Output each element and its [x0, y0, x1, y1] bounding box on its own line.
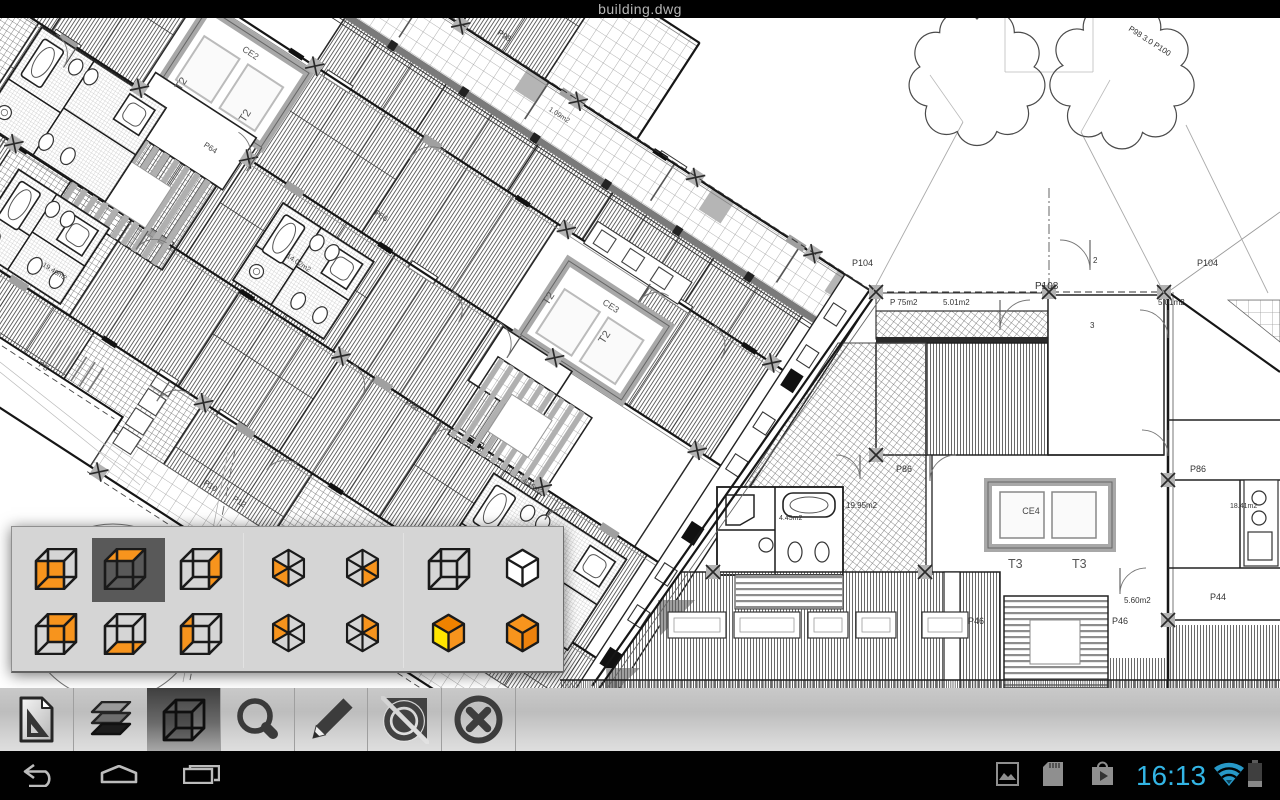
svg-text:5.01m2: 5.01m2: [1158, 298, 1185, 307]
svg-text:P46: P46: [1112, 616, 1128, 626]
svg-text:P104: P104: [852, 258, 873, 268]
svg-text:P 75m2: P 75m2: [890, 298, 918, 307]
svg-text:P108: P108: [1035, 281, 1059, 292]
svg-text:4.45m2: 4.45m2: [779, 515, 802, 522]
svg-text:T3: T3: [1072, 557, 1087, 571]
svg-text:P104: P104: [1197, 258, 1218, 268]
svg-text:T3: T3: [1008, 557, 1023, 571]
svg-text:CE4: CE4: [1022, 506, 1040, 516]
svg-text:5.01m2: 5.01m2: [943, 298, 970, 307]
svg-text:18.41m2: 18.41m2: [1230, 503, 1257, 510]
svg-text:19.95m2: 19.95m2: [846, 501, 878, 510]
svg-text:P44: P44: [1210, 592, 1226, 602]
svg-text:P86: P86: [896, 464, 912, 474]
svg-text:P86: P86: [1190, 464, 1206, 474]
svg-text:3: 3: [1090, 321, 1095, 330]
svg-text:2: 2: [1093, 256, 1098, 265]
svg-text:P46: P46: [968, 616, 984, 626]
svg-text:5.60m2: 5.60m2: [1124, 596, 1151, 605]
